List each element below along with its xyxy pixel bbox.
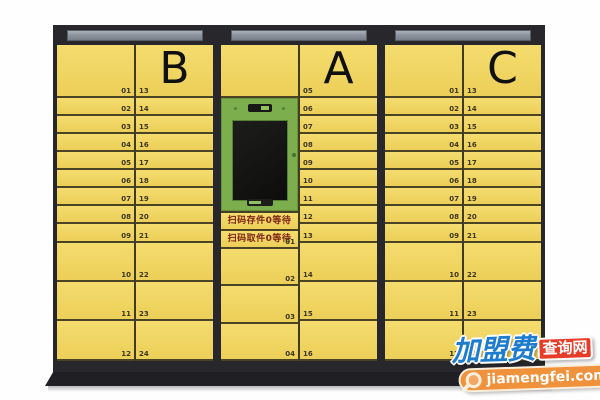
locker-number: 15 xyxy=(467,124,477,131)
locker-number: 03 xyxy=(121,124,131,131)
locker-number: 18 xyxy=(139,178,149,185)
locker-number: 04 xyxy=(449,142,459,149)
cabinet-b-doors: 010203040506070809101112 B13141516171819… xyxy=(57,45,213,361)
watermark: 加盟费 查询网 jiamengfei.com xyxy=(451,331,600,393)
cabinet-c: 010203040506070809101112 C13141516171819… xyxy=(381,25,545,372)
locker-number: 01 xyxy=(449,88,459,95)
locker-number: 24 xyxy=(139,351,149,358)
locker-door-b-24[interactable]: 24 xyxy=(136,321,213,361)
cabinet-a-doors: 扫码存件0等待 扫码取件0等待 01 02 03 04 xyxy=(221,45,377,361)
locker-door-a-07[interactable]: 07 xyxy=(300,116,377,134)
locker-door-c-10[interactable]: 10 xyxy=(385,243,462,282)
side-button[interactable] xyxy=(292,153,296,157)
locker-door-b-01[interactable]: 01 xyxy=(57,45,134,98)
locker-door-c-15[interactable]: 15 xyxy=(464,116,541,134)
locker-number: 08 xyxy=(121,214,131,221)
locker-door-c-07[interactable]: 07 xyxy=(385,188,462,206)
locker-number: 20 xyxy=(139,214,149,221)
locker-door-b-06[interactable]: 06 xyxy=(57,170,134,188)
locker-door-a-05[interactable]: A05 xyxy=(300,45,377,98)
watermark-suffix: 查询网 xyxy=(537,336,593,361)
locker-number: 09 xyxy=(449,233,459,240)
speaker-dot-icon xyxy=(234,107,237,110)
locker-number: 19 xyxy=(467,196,477,203)
locker-number: 07 xyxy=(121,196,131,203)
locker-number: 12 xyxy=(121,351,131,358)
locker-door-a-15[interactable]: 15 xyxy=(300,282,377,321)
locker-door-c-03[interactable]: 03 xyxy=(385,116,462,134)
locker-door-b-02[interactable]: 02 xyxy=(57,98,134,116)
scanner-window xyxy=(247,199,273,206)
locker-number: 06 xyxy=(449,178,459,185)
cabinet-a-sign-strip xyxy=(231,30,367,41)
locker-number: 02 xyxy=(285,276,295,283)
locker-door-c-06[interactable]: 06 xyxy=(385,170,462,188)
cabinet-c-sign-strip xyxy=(395,30,531,41)
locker-number: 08 xyxy=(303,142,313,149)
watermark-domain-pill: jiamengfei.com xyxy=(458,363,600,393)
locker-number: 23 xyxy=(467,311,477,318)
locker-door-c-16[interactable]: 16 xyxy=(464,134,541,152)
locker-number: 22 xyxy=(139,272,149,279)
locker-door-a-08[interactable]: 08 xyxy=(300,134,377,152)
locker-door-b-08[interactable]: 08 xyxy=(57,206,134,224)
locker-number: 08 xyxy=(449,214,459,221)
locker-number: 01 xyxy=(285,239,295,246)
locker-number: 14 xyxy=(139,106,149,113)
locker-number: 13 xyxy=(467,88,477,95)
locker-number: 16 xyxy=(303,351,313,358)
locker-door-b-11[interactable]: 11 xyxy=(57,282,134,321)
locker-number: 02 xyxy=(121,106,131,113)
locker-number: 09 xyxy=(303,160,313,167)
scanner-led-icon xyxy=(249,201,261,204)
cabinet-c-right-column: C131415161718192021222324 xyxy=(464,45,541,361)
locker-number: 02 xyxy=(449,106,459,113)
locker-number: 05 xyxy=(303,88,313,95)
locker-door-b-19[interactable]: 19 xyxy=(136,188,213,206)
locker-number: 11 xyxy=(303,196,313,203)
locker-number: 10 xyxy=(121,272,131,279)
camera-slot-icon xyxy=(248,104,272,112)
locker-number: 11 xyxy=(121,311,131,318)
locker-number: 14 xyxy=(467,106,477,113)
cabinet-letter-c: C xyxy=(464,49,541,88)
watermark-brand: 加盟费 xyxy=(451,334,536,367)
locker-door-b-09[interactable]: 09 xyxy=(57,224,134,243)
locker-door-a-03[interactable]: 03 xyxy=(221,286,298,324)
locker-door-b-12[interactable]: 12 xyxy=(57,321,134,361)
locker-door-b-16[interactable]: 16 xyxy=(136,134,213,152)
cabinet-b-sign-strip xyxy=(67,30,203,41)
cabinet-letter-a: A xyxy=(300,49,377,88)
parcel-locker-photo: 010203040506070809101112 B13141516171819… xyxy=(0,0,600,400)
locker-door-b-18[interactable]: 18 xyxy=(136,170,213,188)
locker-number: 11 xyxy=(449,311,459,318)
locker-door-b-23[interactable]: 23 xyxy=(136,282,213,321)
locker-door-c-09[interactable]: 09 xyxy=(385,224,462,243)
cabinet-a-left-column: 扫码存件0等待 扫码取件0等待 01 02 03 04 xyxy=(221,45,298,361)
locker-number: 15 xyxy=(139,124,149,131)
locker-number: 22 xyxy=(467,272,477,279)
cabinet-c-left-column: 010203040506070809101112 xyxy=(385,45,462,361)
console-panel xyxy=(221,98,298,213)
locker-door-c-13[interactable]: C13 xyxy=(464,45,541,98)
locker-door-b-07[interactable]: 07 xyxy=(57,188,134,206)
watermark-domain: jiamengfei.com xyxy=(486,368,600,386)
locker-door-b-15[interactable]: 15 xyxy=(136,116,213,134)
locker-number: 07 xyxy=(449,196,459,203)
locker-number: 14 xyxy=(303,272,313,279)
camera-indicator-icon xyxy=(261,106,269,110)
cabinet-b: 010203040506070809101112 B13141516171819… xyxy=(53,25,217,372)
cabinet-a-right-column: A050607080910111213141516 xyxy=(300,45,377,361)
locker-door-c-23[interactable]: 23 xyxy=(464,282,541,321)
deposit-status-row: 扫码存件0等待 xyxy=(221,213,298,231)
locker-door-c-08[interactable]: 08 xyxy=(385,206,462,224)
locker-number: 10 xyxy=(303,178,313,185)
locker-door-a-14[interactable]: 14 xyxy=(300,243,377,282)
locker-number: 17 xyxy=(139,160,149,167)
locker-number: 15 xyxy=(303,311,313,318)
locker-door-c-19[interactable]: 19 xyxy=(464,188,541,206)
locker-number: 03 xyxy=(449,124,459,131)
locker-number: 09 xyxy=(121,233,131,240)
locker-number: 12 xyxy=(303,214,313,221)
magnifier-handle-icon xyxy=(462,383,471,393)
cabinet-letter-b: B xyxy=(136,49,213,88)
deposit-status-text: 扫码存件0等待 xyxy=(228,217,292,226)
cabinet-a: 扫码存件0等待 扫码取件0等待 01 02 03 04 xyxy=(217,25,381,372)
locker-door-b-17[interactable]: 17 xyxy=(136,152,213,170)
watermark-title-row: 加盟费 查询网 xyxy=(451,331,600,367)
locker-number: 04 xyxy=(121,142,131,149)
locker-number: 16 xyxy=(467,142,477,149)
locker-number: 06 xyxy=(303,106,313,113)
locker-door-c-22[interactable]: 22 xyxy=(464,243,541,282)
locker-door-a-06[interactable]: 06 xyxy=(300,98,377,116)
locker-door-a-09[interactable]: 09 xyxy=(300,152,377,170)
locker-number: 21 xyxy=(139,233,149,240)
pickup-status-text: 扫码取件0等待 xyxy=(228,235,292,244)
locker-door-b-05[interactable]: 05 xyxy=(57,152,134,170)
locker-door-a-12[interactable]: 12 xyxy=(300,206,377,224)
pickup-status-row: 扫码取件0等待 01 xyxy=(221,231,298,249)
locker-number: 06 xyxy=(121,178,131,185)
locker-unit: 010203040506070809101112 B13141516171819… xyxy=(53,25,545,372)
locker-door-b-14[interactable]: 14 xyxy=(136,98,213,116)
locker-number: 13 xyxy=(139,88,149,95)
cabinet-b-left-column: 010203040506070809101112 xyxy=(57,45,134,361)
locker-door-a-04[interactable]: 04 xyxy=(221,324,298,361)
locker-door-c-05[interactable]: 05 xyxy=(385,152,462,170)
locker-number: 17 xyxy=(467,160,477,167)
locker-number: 23 xyxy=(139,311,149,318)
locker-door-c-14[interactable]: 14 xyxy=(464,98,541,116)
locker-door-b-22[interactable]: 22 xyxy=(136,243,213,282)
locker-door-b-21[interactable]: 21 xyxy=(136,224,213,243)
locker-door-c-17[interactable]: 17 xyxy=(464,152,541,170)
locker-door-c-01[interactable]: 01 xyxy=(385,45,462,98)
locker-door-c-02[interactable]: 02 xyxy=(385,98,462,116)
locker-door-a-13[interactable]: 13 xyxy=(300,224,377,243)
locker-number: 10 xyxy=(449,272,459,279)
cabinet-b-right-column: B131415161718192021222324 xyxy=(136,45,213,361)
locker-door-b-20[interactable]: 20 xyxy=(136,206,213,224)
locker-door-a-11[interactable]: 11 xyxy=(300,188,377,206)
cabinet-c-doors: 010203040506070809101112 C13141516171819… xyxy=(385,45,541,361)
locker-door-a-02[interactable]: 02 xyxy=(221,249,298,286)
locker-number: 13 xyxy=(303,233,313,240)
locker-door-a-top[interactable] xyxy=(221,45,298,98)
locker-number: 16 xyxy=(139,142,149,149)
locker-door-c-18[interactable]: 18 xyxy=(464,170,541,188)
locker-number: 05 xyxy=(121,160,131,167)
locker-number: 03 xyxy=(285,314,295,321)
magnifier-icon xyxy=(465,372,482,389)
locker-number: 01 xyxy=(121,88,131,95)
locker-door-c-21[interactable]: 21 xyxy=(464,224,541,243)
console-screen[interactable] xyxy=(232,120,288,201)
locker-door-b-10[interactable]: 10 xyxy=(57,243,134,282)
locker-door-c-04[interactable]: 04 xyxy=(385,134,462,152)
locker-number: 18 xyxy=(467,178,477,185)
locker-door-a-16[interactable]: 16 xyxy=(300,321,377,361)
locker-door-c-20[interactable]: 20 xyxy=(464,206,541,224)
locker-number: 07 xyxy=(303,124,313,131)
locker-door-b-04[interactable]: 04 xyxy=(57,134,134,152)
locker-door-c-11[interactable]: 11 xyxy=(385,282,462,321)
locker-number: 04 xyxy=(285,351,295,358)
locker-number: 20 xyxy=(467,214,477,221)
locker-door-a-10[interactable]: 10 xyxy=(300,170,377,188)
locker-door-b-03[interactable]: 03 xyxy=(57,116,134,134)
locker-number: 05 xyxy=(449,160,459,167)
locker-door-b-13[interactable]: B13 xyxy=(136,45,213,98)
locker-number: 19 xyxy=(139,196,149,203)
locker-number: 21 xyxy=(467,233,477,240)
speaker-dot-icon xyxy=(282,107,285,110)
